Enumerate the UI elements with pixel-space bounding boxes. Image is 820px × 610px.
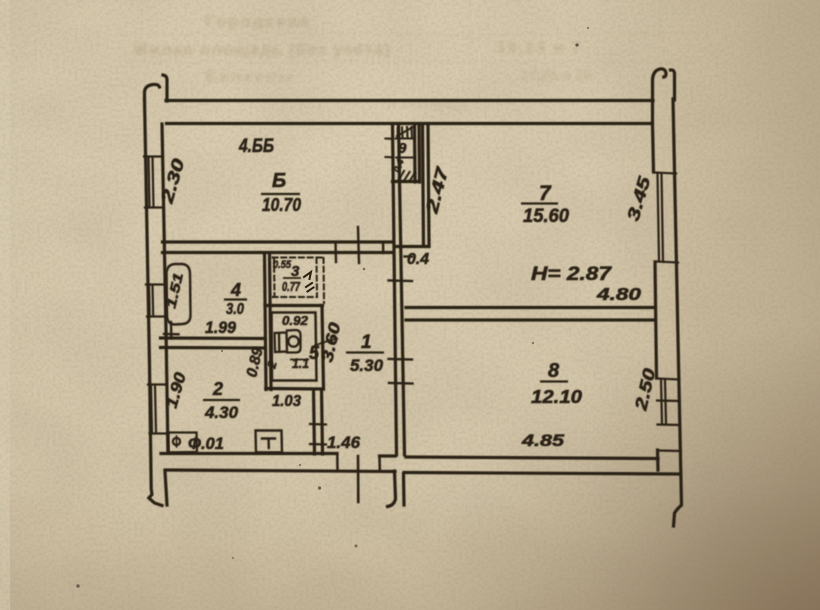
svg-text:Н= 2.87: Н= 2.87 [531, 264, 613, 285]
svg-text:0.55: 0.55 [273, 259, 292, 271]
svg-text:17,25 и 10: 17,25 и 10 [520, 67, 592, 84]
svg-text:19,23 и 7: 19,23 и 7 [497, 40, 583, 57]
svg-text:8: 8 [548, 360, 560, 382]
svg-text:Городская: Городская [205, 12, 311, 31]
svg-text:Балконы: Балконы [205, 67, 295, 86]
svg-text:4.80: 4.80 [596, 284, 642, 304]
svg-text:15.60: 15.60 [523, 206, 569, 227]
svg-text:2: 2 [212, 379, 223, 399]
svg-text:4: 4 [230, 280, 241, 300]
svg-text:9: 9 [398, 140, 407, 157]
svg-text:4.ББ: 4.ББ [238, 136, 274, 157]
svg-text:12.10: 12.10 [531, 387, 582, 407]
svg-text:1: 1 [361, 332, 372, 353]
svg-text:0.4: 0.4 [407, 251, 429, 268]
svg-text:0.92: 0.92 [282, 314, 308, 328]
svg-text:4.30: 4.30 [204, 403, 239, 422]
svg-text:0.77: 0.77 [282, 279, 301, 294]
svg-text:Б: Б [272, 170, 286, 192]
svg-text:3.0: 3.0 [226, 301, 244, 318]
svg-text:Ф.01: Ф.01 [188, 434, 224, 453]
svg-text:и площадь: и площадь [388, 95, 469, 112]
svg-text:1.46: 1.46 [327, 433, 361, 452]
svg-text:7: 7 [539, 182, 552, 205]
svg-text:5.30: 5.30 [350, 356, 384, 375]
svg-text:4.85: 4.85 [521, 431, 565, 450]
svg-text:Жилая площадь (без учёта): Жилая площадь (без учёта) [132, 40, 391, 59]
svg-text:1.03: 1.03 [272, 393, 301, 410]
svg-text:10.70: 10.70 [262, 195, 301, 215]
svg-text:1.1: 1.1 [292, 355, 309, 371]
svg-text:1.99: 1.99 [205, 319, 237, 337]
